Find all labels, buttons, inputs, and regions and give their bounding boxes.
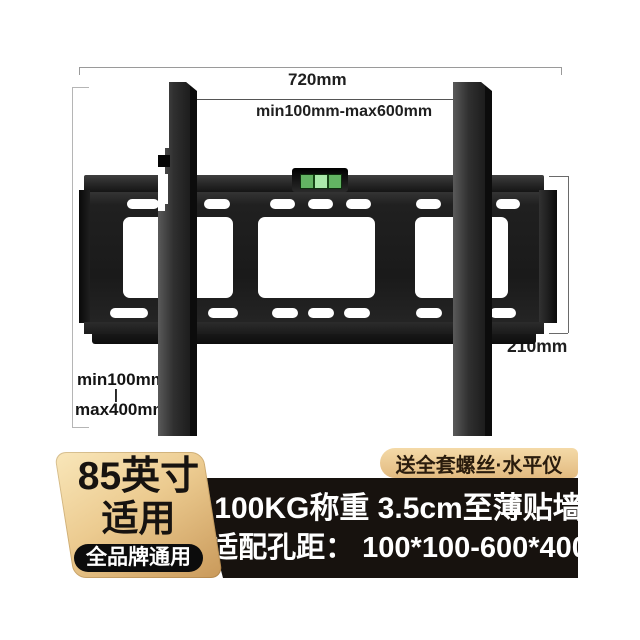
- plate-slot: [272, 308, 298, 318]
- mount-plate-left-flange: [79, 190, 90, 323]
- vertical-rail-left: [158, 82, 197, 436]
- plate-slot: [344, 308, 370, 318]
- rail-hole: [158, 104, 169, 115]
- rail-hole: [158, 115, 169, 126]
- spec-banner-line1: 100KG称重 3.5cm至薄贴墙: [214, 489, 582, 529]
- dimension-line-vertical: [72, 87, 73, 427]
- plate-slot: [416, 199, 441, 209]
- dimension-tick: [72, 87, 89, 88]
- bubble-level: [292, 168, 348, 192]
- dimension-label-720: 720mm: [288, 70, 347, 90]
- plate-slot: [308, 308, 334, 318]
- rail-hole: [158, 93, 169, 104]
- rail-hole: [158, 167, 165, 174]
- plate-slot: [496, 199, 520, 209]
- dimension-line-210: [568, 176, 569, 333]
- size-badge-pill: 全品牌通用: [74, 544, 203, 572]
- bubble-level-window: [300, 174, 342, 189]
- plate-slot: [110, 308, 148, 318]
- dimension-tick: [549, 176, 568, 177]
- dimension-line-hole-width: [176, 99, 468, 100]
- plate-slot: [308, 199, 333, 209]
- dimension-tick: [549, 333, 568, 334]
- bubble-level-bubble: [315, 175, 329, 188]
- size-badge-suitable: 适用: [102, 499, 176, 539]
- vertical-rail-right: [453, 82, 492, 436]
- dimension-label-hole-width: min100mm-max600mm: [256, 103, 432, 121]
- bubble-level-cell: [301, 175, 315, 188]
- plate-slot: [204, 199, 230, 209]
- dimension-line-720: [79, 67, 562, 68]
- rail-hole: [158, 126, 169, 137]
- rail-hole: [158, 82, 169, 93]
- rail-hole: [158, 155, 170, 167]
- rail-hole: [158, 137, 169, 148]
- plate-cutout: [258, 217, 375, 298]
- plate-slot: [208, 308, 238, 318]
- plate-slot: [416, 308, 442, 318]
- size-badge-content: 85英寸 适用 全品牌通用: [64, 452, 213, 578]
- dimension-tick: [561, 67, 562, 75]
- bubble-level-cell: [329, 175, 341, 188]
- rail-hole: [158, 194, 168, 204]
- size-badge: 85英寸 适用 全品牌通用: [54, 452, 223, 578]
- gift-badge: 送全套螺丝·水平仪: [380, 448, 578, 478]
- plate-slot: [490, 308, 516, 318]
- size-badge-size: 85英寸: [78, 455, 199, 499]
- rail-hole: [158, 174, 168, 184]
- rail-hole: [158, 148, 165, 155]
- product-image: 720mm min100mm-max600mm min100mm | max40…: [0, 0, 640, 640]
- spec-banner: 100KG称重 3.5cm至薄贴墙 适配孔距： 100*100-600*400: [171, 478, 578, 578]
- spec-banner-line2: 适配孔距： 100*100-600*400: [209, 529, 588, 567]
- dimension-tick: [72, 427, 89, 428]
- mount-plate-right-flange: [539, 190, 557, 323]
- plate-slot: [270, 199, 295, 209]
- rail-hole: [158, 184, 168, 194]
- plate-slot: [127, 199, 159, 209]
- plate-slot: [346, 199, 371, 209]
- dimension-label-vertical-max: max400mm: [75, 400, 168, 420]
- rail-hole: [158, 204, 165, 211]
- dimension-tick: [79, 67, 80, 75]
